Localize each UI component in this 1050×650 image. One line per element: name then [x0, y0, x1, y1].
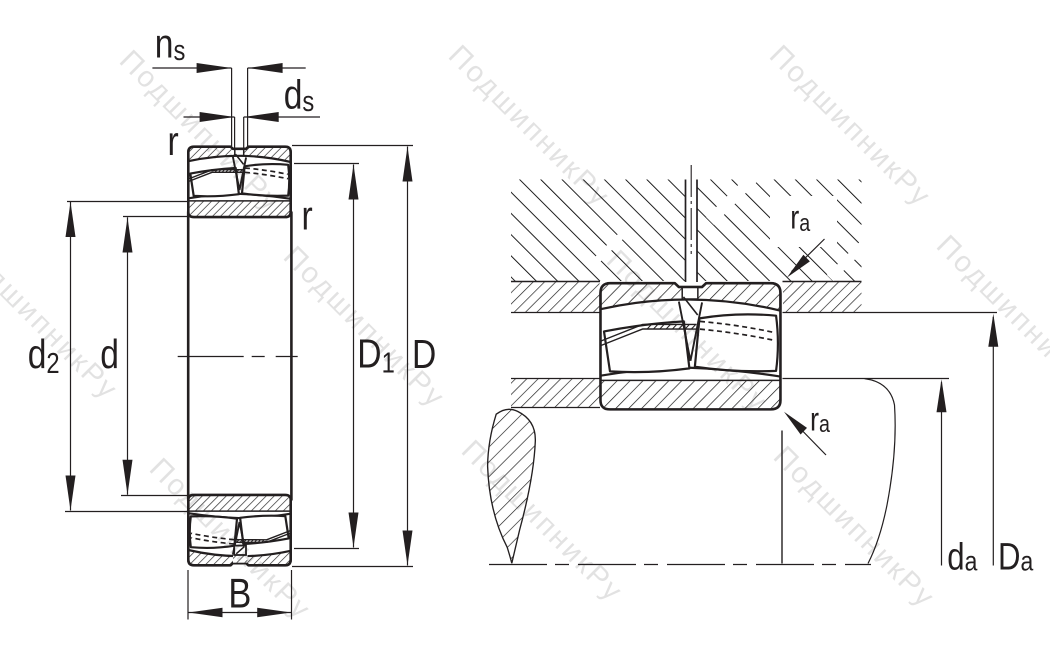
svg-text:r: r: [302, 192, 313, 238]
